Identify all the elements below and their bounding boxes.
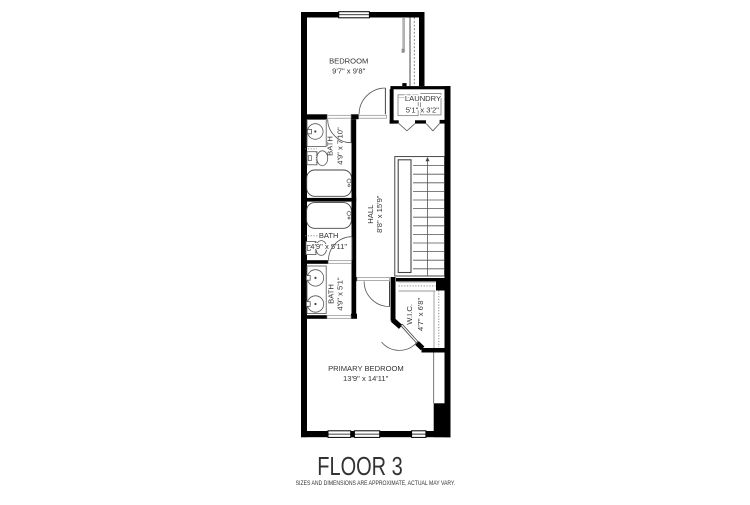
svg-text:FLOOR 3: FLOOR 3 bbox=[317, 453, 403, 481]
svg-text:8'8" x 15'9": 8'8" x 15'9" bbox=[375, 195, 384, 233]
svg-text:BATH: BATH bbox=[326, 284, 335, 304]
svg-text:4'7" x 6'8": 4'7" x 6'8" bbox=[416, 297, 425, 331]
svg-text:BEDROOM: BEDROOM bbox=[329, 57, 368, 66]
svg-text:BATH: BATH bbox=[319, 231, 339, 240]
svg-text:13'9" x 14'11": 13'9" x 14'11" bbox=[343, 374, 389, 383]
svg-text:LAUNDRY: LAUNDRY bbox=[405, 94, 441, 103]
svg-text:BATH: BATH bbox=[326, 136, 335, 156]
svg-text:4'9" x 7'10": 4'9" x 7'10" bbox=[336, 127, 345, 165]
svg-text:4'9" x 5'1": 4'9" x 5'1" bbox=[336, 277, 345, 311]
svg-text:9'7" x 9'8": 9'7" x 9'8" bbox=[332, 67, 366, 76]
svg-text:5'1" x 3'2": 5'1" x 3'2" bbox=[406, 106, 440, 115]
svg-text:4'9" x 5'11": 4'9" x 5'11" bbox=[310, 242, 347, 251]
svg-text:SIZES AND DIMENSIONS ARE APPRO: SIZES AND DIMENSIONS ARE APPROXIMATE, AC… bbox=[296, 480, 456, 487]
svg-text:HALL: HALL bbox=[366, 205, 375, 224]
svg-text:W.I.C.: W.I.C. bbox=[405, 304, 414, 325]
svg-text:PRIMARY BEDROOM: PRIMARY BEDROOM bbox=[328, 364, 404, 373]
